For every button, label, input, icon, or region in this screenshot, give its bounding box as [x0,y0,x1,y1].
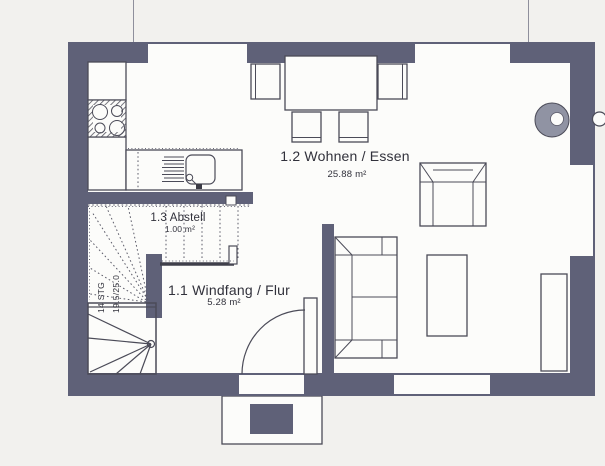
dining-chair [251,64,280,99]
dining-chair [378,64,407,99]
stove-icon [88,100,126,137]
room-label-wohnen-essen: 1.2 Wohnen / Essen [262,149,428,164]
coffee-table [427,255,467,336]
porch [222,396,322,444]
dining-chair [292,112,321,142]
window-top-right [415,44,510,63]
room-label-windfang-flur: 1.1 Windfang / Flur [146,283,312,298]
floor-plan-drawing [0,0,605,466]
window-bottom [394,375,490,394]
window-right [570,165,593,256]
floor-plan-page: 1.2 Wohnen / Essen 25.88 m² 1.3 Abstell … [0,0,605,466]
door-jamb-notch [226,196,236,205]
room-area-wohnen-essen: 25.88 m² [297,170,397,180]
window-top-left [148,44,247,63]
room-label-abstell: 1.3 Abstell [128,212,228,224]
armchair [420,163,486,226]
vent-icon [593,112,605,126]
sideboard [541,274,567,371]
dining-chair [339,112,368,142]
dining-table [285,56,377,110]
entry-door-opening [239,375,304,394]
sofa [335,237,397,358]
door-mat [250,404,293,434]
room-area-abstell: 1.00 m² [130,225,230,234]
stairs-rise-run-label: 19.5/25.0 [112,275,121,313]
room-area-windfang-flur: 5.28 m² [174,298,274,308]
stairs-steps-label: 14 STG [97,282,106,313]
